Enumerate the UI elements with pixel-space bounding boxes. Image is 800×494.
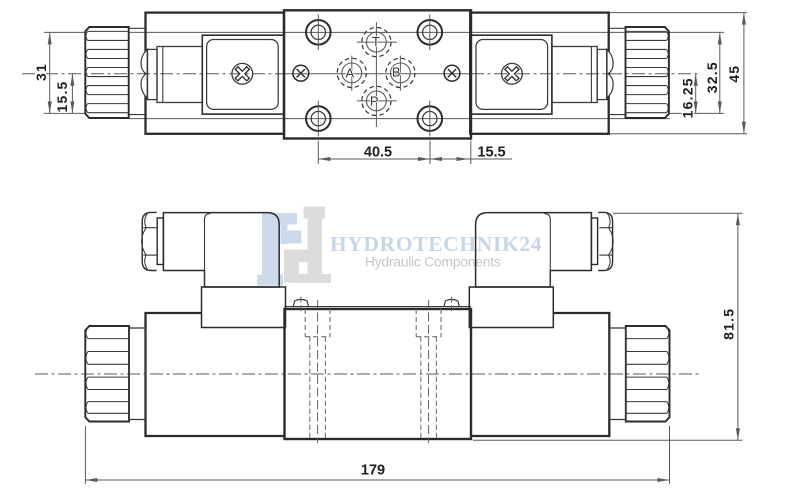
svg-text:40.5: 40.5 — [364, 145, 392, 161]
svg-text:16.25: 16.25 — [680, 77, 696, 118]
svg-text:81.5: 81.5 — [720, 308, 736, 340]
svg-text:B: B — [392, 65, 401, 80]
svg-text:P: P — [370, 94, 379, 109]
svg-text:31: 31 — [33, 63, 49, 81]
svg-text:179: 179 — [361, 463, 385, 479]
svg-text:Hydraulic Components: Hydraulic Components — [365, 254, 501, 270]
svg-text:T: T — [372, 34, 380, 49]
svg-text:15.5: 15.5 — [54, 80, 70, 112]
svg-text:32.5: 32.5 — [704, 61, 720, 93]
svg-text:45: 45 — [726, 65, 742, 83]
svg-text:A: A — [345, 66, 354, 81]
svg-text:15.5: 15.5 — [477, 145, 505, 161]
